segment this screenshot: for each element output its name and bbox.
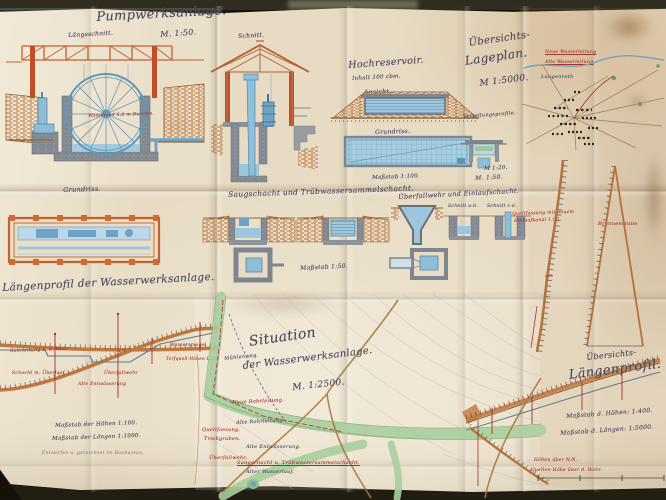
uebersichtsprofil-red-note1: Höhen über N.N. <box>534 458 577 463</box>
map-label-quellfassung: Quellfassung. <box>202 427 241 433</box>
pump-grundriss-label: Grundriss. <box>63 185 101 194</box>
funnel-plan-drawing <box>388 248 458 296</box>
pump-house-longitudinal-section-drawing <box>6 36 204 186</box>
sammelschacht-section-drawing <box>297 202 389 248</box>
profile-annotation: Überfallwehr <box>104 371 138 376</box>
shaft-plan-drawing <box>226 246 284 290</box>
wehr-sections-drawing <box>443 202 531 250</box>
small-shaft-scale: M 1:20. <box>484 165 508 172</box>
pump-house-cross-section-drawing <box>203 38 318 188</box>
drawing-remark: Entworfen u. gezeichnet im Baubureau. <box>42 451 144 456</box>
overview-profile-spike-drawing <box>527 156 665 354</box>
pump-house-plan-drawing <box>6 210 164 268</box>
profile-annotation: Schacht m. Überlauf <box>12 371 65 376</box>
row-scale-top: M. 1:50. <box>475 174 503 182</box>
reservoir-plan-drawing <box>341 134 475 172</box>
einlauf-funnel-section-drawing <box>391 196 443 254</box>
photo-of-plan: Pumpwerksanlage. M. 1:50. Längsschnitt. … <box>0 0 666 500</box>
profile-annotation: Alte Entwässerung <box>78 382 126 387</box>
map-label-triebgraben: Triebgraben. <box>204 436 241 442</box>
uebersichtsprofil-red-note2: Quellen-Höhe über d. Wehr. <box>531 468 602 473</box>
photo-background-blur <box>288 0 418 9</box>
saugschacht-section-drawing <box>203 202 295 248</box>
map-label-saugschacht: Saugschacht u. Trübwassersammelschacht. <box>237 460 360 466</box>
map-label-entwaesserung: Alte Entwässerung. <box>246 444 301 450</box>
overview-map-drawing <box>518 46 666 150</box>
reservoir-elevation-drawing <box>331 84 479 124</box>
map-label-wasserlauf: Alter Wasserlauf. <box>246 469 295 475</box>
